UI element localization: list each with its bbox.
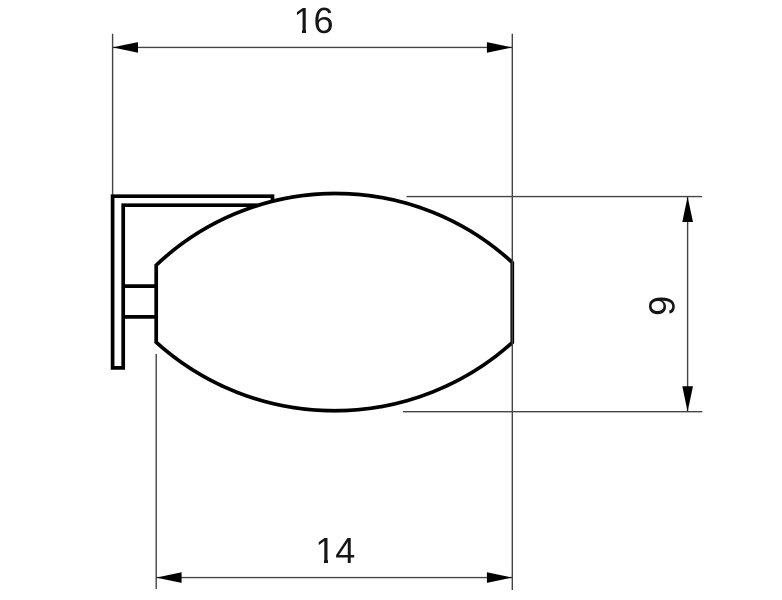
svg-text:14: 14 xyxy=(315,530,355,571)
svg-text:9: 9 xyxy=(642,296,683,316)
svg-text:16: 16 xyxy=(293,0,333,41)
